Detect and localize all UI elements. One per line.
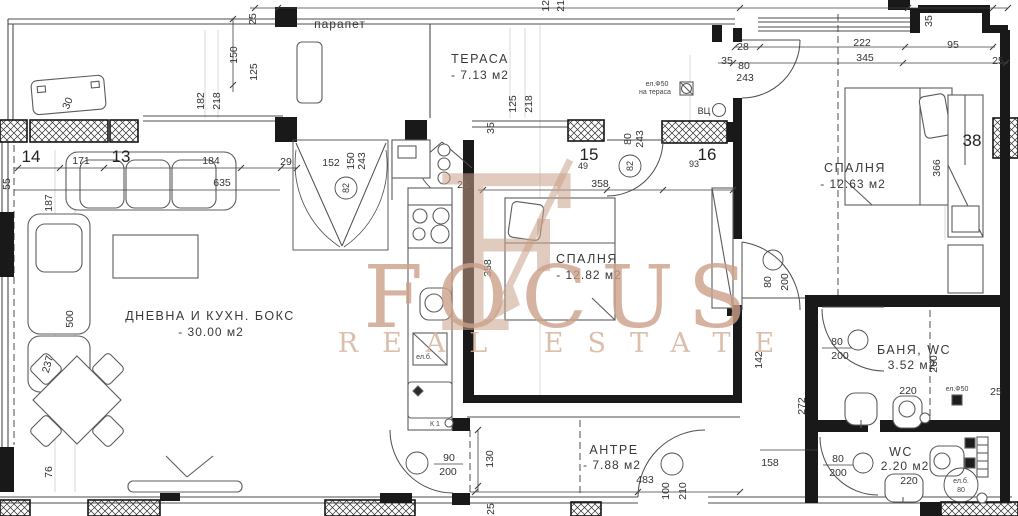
room-area-living: - 30.00 м2: [178, 325, 244, 339]
axis-16: 16: [698, 145, 717, 164]
dim-184: 184: [202, 155, 220, 167]
dim-29: 29: [280, 156, 292, 168]
vc-symbol: [713, 104, 726, 117]
dim-187: 187: [43, 194, 55, 212]
dim-76: 76: [43, 466, 55, 478]
dim-366: 366: [931, 159, 943, 177]
balcony-table: [297, 42, 322, 103]
dim-218: 218: [211, 92, 223, 110]
dim-218-terrace: 218: [523, 95, 535, 113]
watermark-tagline: REAL ESTATE: [338, 328, 799, 359]
note-el-f50: ел.Ф50: [646, 81, 669, 88]
note-vc: ВЦ: [698, 106, 711, 116]
dim-243-door1: 243: [736, 72, 754, 84]
dim-260: 260: [928, 355, 940, 373]
dim-35-right: 35: [721, 55, 733, 67]
dim-200-bath: 200: [831, 350, 849, 362]
wardrobe-right: [948, 95, 983, 293]
dim-125-terrace: 125: [507, 95, 519, 113]
dim-95: 95: [947, 39, 959, 51]
note-el-b: ел.б.: [953, 477, 969, 485]
note-on-terrace: на тераса: [639, 89, 671, 96]
dim-28: 28: [737, 41, 749, 53]
radiator: [128, 481, 242, 492]
dim-220-bath: 220: [899, 385, 917, 397]
dim-500: 500: [64, 310, 76, 328]
dim-345: 345: [856, 52, 874, 64]
dim-25-bath: 25: [990, 386, 1002, 398]
k1-symbol: [445, 419, 453, 427]
parapet-label: парапет: [314, 17, 366, 31]
dim-152: 152: [322, 157, 340, 169]
dim-25-hall: 25: [485, 503, 497, 515]
mark-82-window: 82: [341, 183, 351, 193]
note-k1: К 1: [430, 421, 440, 428]
dim-200-wc: 200: [829, 467, 847, 479]
room-label-living: ДНЕВНА И КУХН. БОКС: [125, 309, 295, 323]
floor-plan-drawing: ТЕРАСА - 7.13 м2 СПАЛНЯ - 12.63 м2 СПАЛН…: [0, 0, 1018, 516]
dim-171: 171: [72, 155, 90, 167]
dim-35-vert: 35: [923, 15, 935, 27]
room-label-hall: АНТРЕ: [589, 443, 638, 457]
dim-210: 210: [677, 482, 689, 500]
dim-243-door2: 243: [634, 130, 646, 148]
dim-80-cor: 80: [762, 276, 774, 288]
dim-200-cor: 200: [779, 273, 791, 291]
dim-55: 55: [1, 178, 13, 190]
dim-38: 38: [963, 131, 982, 150]
note-el-b-80: 80: [957, 487, 965, 494]
dim-130: 130: [484, 450, 496, 468]
dim-80-bath: 80: [831, 336, 843, 348]
room-label-bedroom-right: СПАЛНЯ: [824, 161, 886, 175]
dim-80-door2: 80: [622, 133, 634, 145]
note-drain: ел.Ф50: [946, 386, 969, 393]
dim-200-hall: 200: [439, 466, 457, 478]
dim-222: 222: [853, 37, 871, 49]
room-area-hall: - 7.88 м2: [583, 458, 641, 472]
floor-plan-page: ТЕРАСА - 7.13 м2 СПАЛНЯ - 12.63 м2 СПАЛН…: [0, 0, 1018, 516]
coffee-table: [113, 235, 198, 278]
dim-25: 25: [247, 13, 259, 25]
shaft-icon: [680, 82, 693, 95]
dim-182: 182: [195, 92, 207, 110]
dim-635: 635: [213, 177, 231, 189]
dim-25-right: 25: [992, 55, 1004, 67]
dim-125: 125: [248, 63, 260, 81]
dim-100: 100: [660, 482, 672, 500]
room-area-terrace: - 7.13 м2: [451, 68, 509, 82]
dim-158: 158: [761, 457, 779, 469]
dim-358: 358: [591, 178, 609, 190]
dim-218-top: 218: [555, 0, 567, 12]
room-area-wc: 2.20 м2: [881, 459, 930, 473]
axis-14: 14: [22, 147, 41, 166]
mark-82-door: 82: [625, 161, 635, 171]
dim-483: 483: [636, 474, 654, 486]
axis-13: 13: [112, 147, 131, 166]
room-label-wc: WC: [889, 445, 913, 459]
dim-220-wc: 220: [900, 475, 918, 487]
dim-125-top: 125: [540, 0, 552, 12]
dim-93: 93: [689, 159, 699, 169]
room-label-bath: БАНЯ, WC: [877, 343, 951, 357]
dim-243-win: 243: [356, 152, 368, 170]
dim-90: 90: [443, 452, 455, 464]
dim-150: 150: [228, 46, 240, 64]
dim-80-door1: 80: [738, 60, 750, 72]
room-area-bedroom-right: - 12.63 м2: [820, 177, 886, 191]
room-label-terrace: ТЕРАСА: [451, 52, 509, 66]
dim-272: 272: [796, 397, 808, 415]
dim-80-wc: 80: [832, 453, 844, 465]
